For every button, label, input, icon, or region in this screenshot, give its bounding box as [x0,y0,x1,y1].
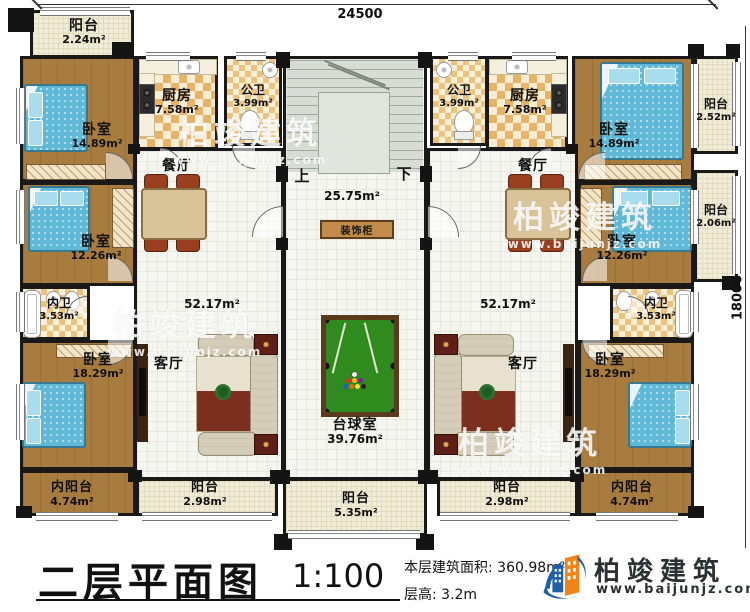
sofa [198,432,258,456]
label-bedroom-mr: 卧室 12.26m² [582,234,662,263]
wall-pier [276,238,288,250]
window [16,292,25,332]
window [596,512,678,521]
pillow [28,120,43,146]
label-billiard: 台球室 39.76m² [319,417,391,447]
stair-landing [318,92,390,174]
label-dining-right: 餐厅 [496,158,570,174]
window [512,52,556,61]
pillow [34,191,58,206]
bed [628,382,692,448]
plant-icon [215,384,231,400]
sofa [434,352,462,438]
label-kitchen-left: 厨房 7.58m² [140,88,214,117]
billiard-balls [352,372,357,377]
wall-pier [570,470,584,482]
label-balcony-tr: 阳台 2.52m² [694,98,738,123]
label-living-right: 客厅 [500,356,546,372]
kitchen-sink [178,60,200,74]
wall-pier [420,166,432,182]
wall-pier [8,8,34,32]
side-table [254,434,278,455]
floor-plan-page: 24500 18000 装饰柜 [0,0,750,612]
bath-sink [436,62,452,78]
label-living-area-right: 52.17m² [472,298,544,312]
label-inner-bath-left: 内卫 3.53m² [30,297,88,322]
toilet-tank [454,131,474,140]
wall-pier [276,52,290,68]
wardrobe [26,164,106,180]
tv-icon [139,368,146,416]
label-living-left: 客厅 [146,356,192,372]
label-balcony-mr: 阳台 2.06m² [694,204,738,229]
label-stairs-down: 下 [392,166,416,183]
window [440,512,570,521]
label-stairs-up: 上 [290,168,314,185]
window [288,530,420,539]
wall-pier [726,44,740,58]
wall-pier [688,506,704,518]
dimension-line-top [36,4,716,5]
pillow [675,390,690,416]
label-bedroom-tl: 卧室 14.89m² [55,122,139,151]
pillow [60,191,84,206]
label-bedroom-tr: 卧室 14.89m² [572,122,656,151]
sofa [250,352,278,438]
pillow [608,68,640,84]
label-hall-area: 25.75m² [316,190,388,204]
pillow [26,418,41,444]
dining-table [141,188,207,240]
side-table [434,334,458,355]
window [142,512,272,521]
wall-pier [418,470,438,484]
wall-pier [276,166,288,182]
window [16,88,25,144]
window [236,52,266,61]
window [40,7,130,16]
label-dining-left: 餐厅 [140,158,214,174]
pillow [28,92,43,118]
plant-icon [479,384,495,400]
company-logo-url: www.baijunjz.com [596,582,750,597]
label-balcony-tl: 阳台 2.24m² [44,18,124,47]
decor-cabinet: 装饰柜 [320,220,394,239]
pillow [26,390,41,416]
wall-pier [418,52,432,68]
label-inner-balcony-right: 内阳台 4.74m² [590,481,674,509]
label-inner-bath-right: 内卫 3.53m² [626,297,686,322]
side-table [254,334,278,355]
kitchen-sink [506,60,528,74]
label-public-bath-right: 公卫 3.99m² [430,84,488,109]
window [690,292,699,332]
bed [22,382,86,448]
wall-pier [270,470,290,484]
label-inner-balcony-left: 内阳台 4.74m² [30,481,114,509]
label-balcony-br: 阳台 2.98m² [462,481,552,509]
pillow [652,191,680,206]
dining-table [505,188,571,240]
company-logo-icon [538,548,592,610]
label-bedroom-ml: 卧室 12.26m² [56,234,136,263]
floor-height-text: 层高: 3.2m [404,584,477,604]
label-public-bath-left: 公卫 3.99m² [224,84,282,109]
label-balcony-bl: 阳台 2.98m² [160,481,250,509]
pillow [620,191,648,206]
label-kitchen-right: 厨房 7.58m² [488,88,562,117]
sofa [458,334,514,356]
plan-scale: 1:100 [292,557,384,595]
dimension-right-label: 18000 [731,266,746,330]
title-underline [36,599,400,601]
window [448,52,478,61]
window [146,52,190,61]
side-table [434,434,458,455]
label-bedroom-bl: 卧室 18.29m² [58,352,138,381]
sofa [198,334,254,356]
pillow [675,418,690,444]
pillow [644,68,676,84]
label-bedroom-br: 卧室 18.29m² [570,352,650,381]
label-living-area-left: 52.17m² [176,298,248,312]
wall-pier [688,44,704,58]
wall-pier [420,238,432,250]
window [16,190,25,244]
sofa [454,432,514,456]
window [690,384,699,440]
wall-pier [128,470,142,482]
window [16,384,25,440]
label-balcony-bc: 阳台 5.35m² [320,492,392,520]
toilet-tank [240,131,260,140]
window [36,512,118,521]
dimension-top-label: 24500 [320,7,400,22]
